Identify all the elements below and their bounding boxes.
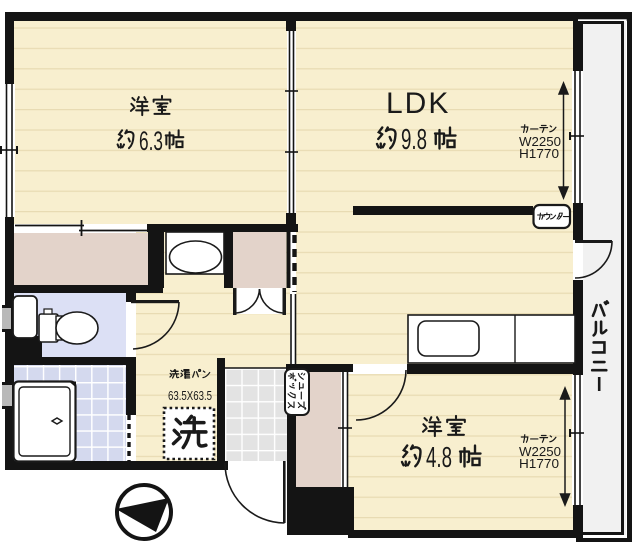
svg-text:LDK: LDK (386, 87, 450, 120)
svg-text:H1770: H1770 (519, 147, 559, 161)
svg-text:6.3: 6.3 (139, 126, 163, 156)
svg-text:63.5X63.5: 63.5X63.5 (168, 388, 212, 403)
svg-text:4.8: 4.8 (426, 442, 452, 474)
svg-text:H1770: H1770 (519, 457, 559, 471)
svg-text:9.8: 9.8 (401, 124, 427, 156)
